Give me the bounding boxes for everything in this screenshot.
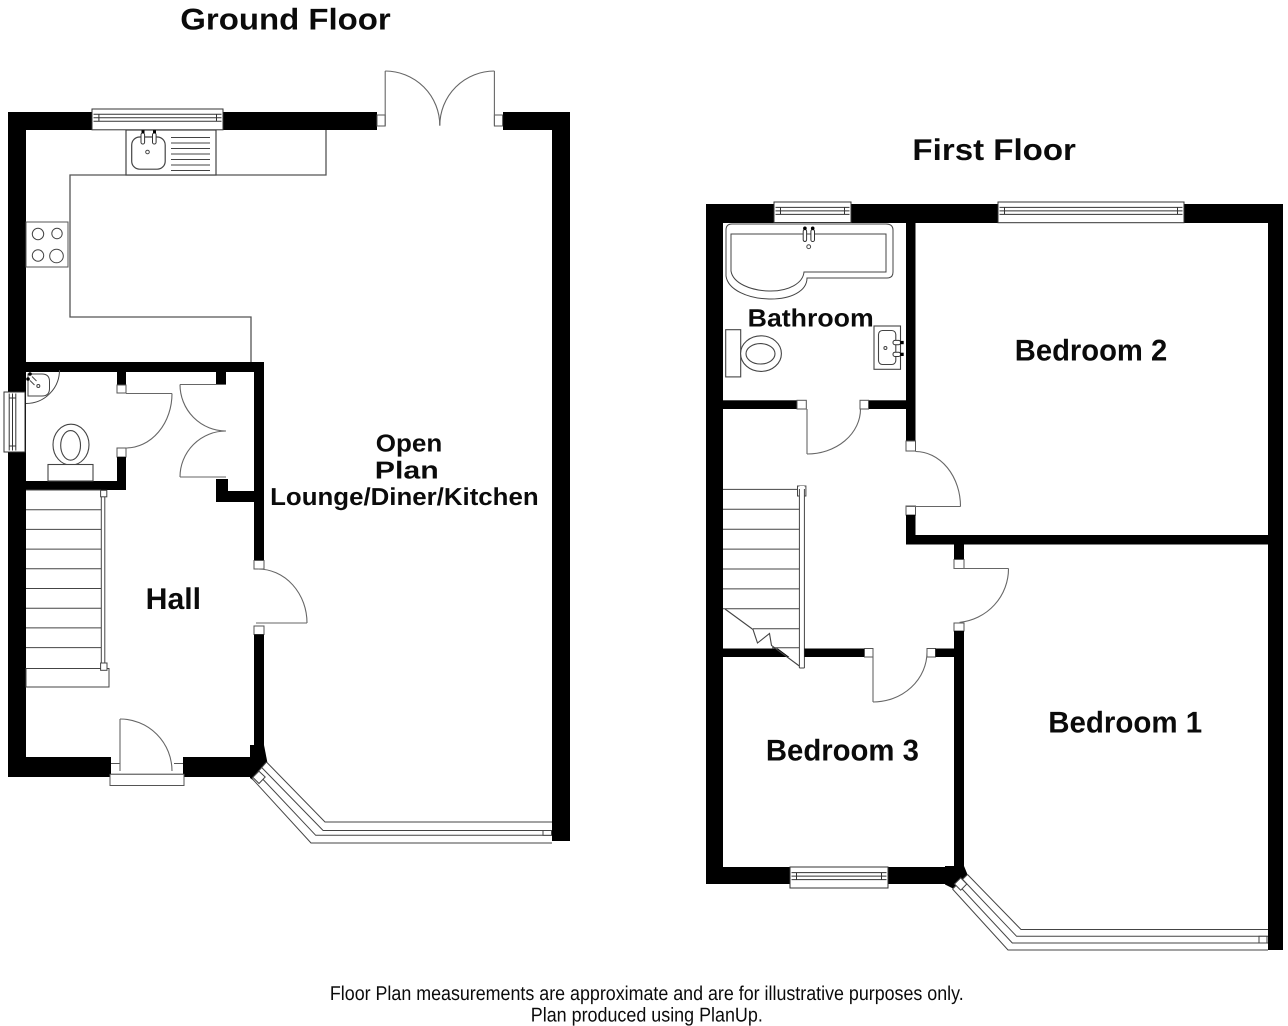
svg-text:First Floor: First Floor <box>912 134 1076 167</box>
svg-text:Lounge/Diner/Kitchen: Lounge/Diner/Kitchen <box>270 484 539 511</box>
svg-text:Floor Plan measurements are ap: Floor Plan measurements are approximate … <box>330 983 964 1005</box>
svg-text:Bathroom: Bathroom <box>748 304 874 332</box>
svg-text:Plan produced using PlanUp.: Plan produced using PlanUp. <box>531 1005 763 1026</box>
svg-text:Ground Floor: Ground Floor <box>180 4 391 37</box>
svg-text:Bedroom 2: Bedroom 2 <box>1015 335 1168 368</box>
svg-text:Bedroom 1: Bedroom 1 <box>1048 706 1202 739</box>
svg-text:Bedroom 3: Bedroom 3 <box>766 735 919 768</box>
svg-text:Hall: Hall <box>146 583 201 616</box>
svg-text:Plan: Plan <box>375 457 439 484</box>
svg-text:Open: Open <box>376 431 443 458</box>
